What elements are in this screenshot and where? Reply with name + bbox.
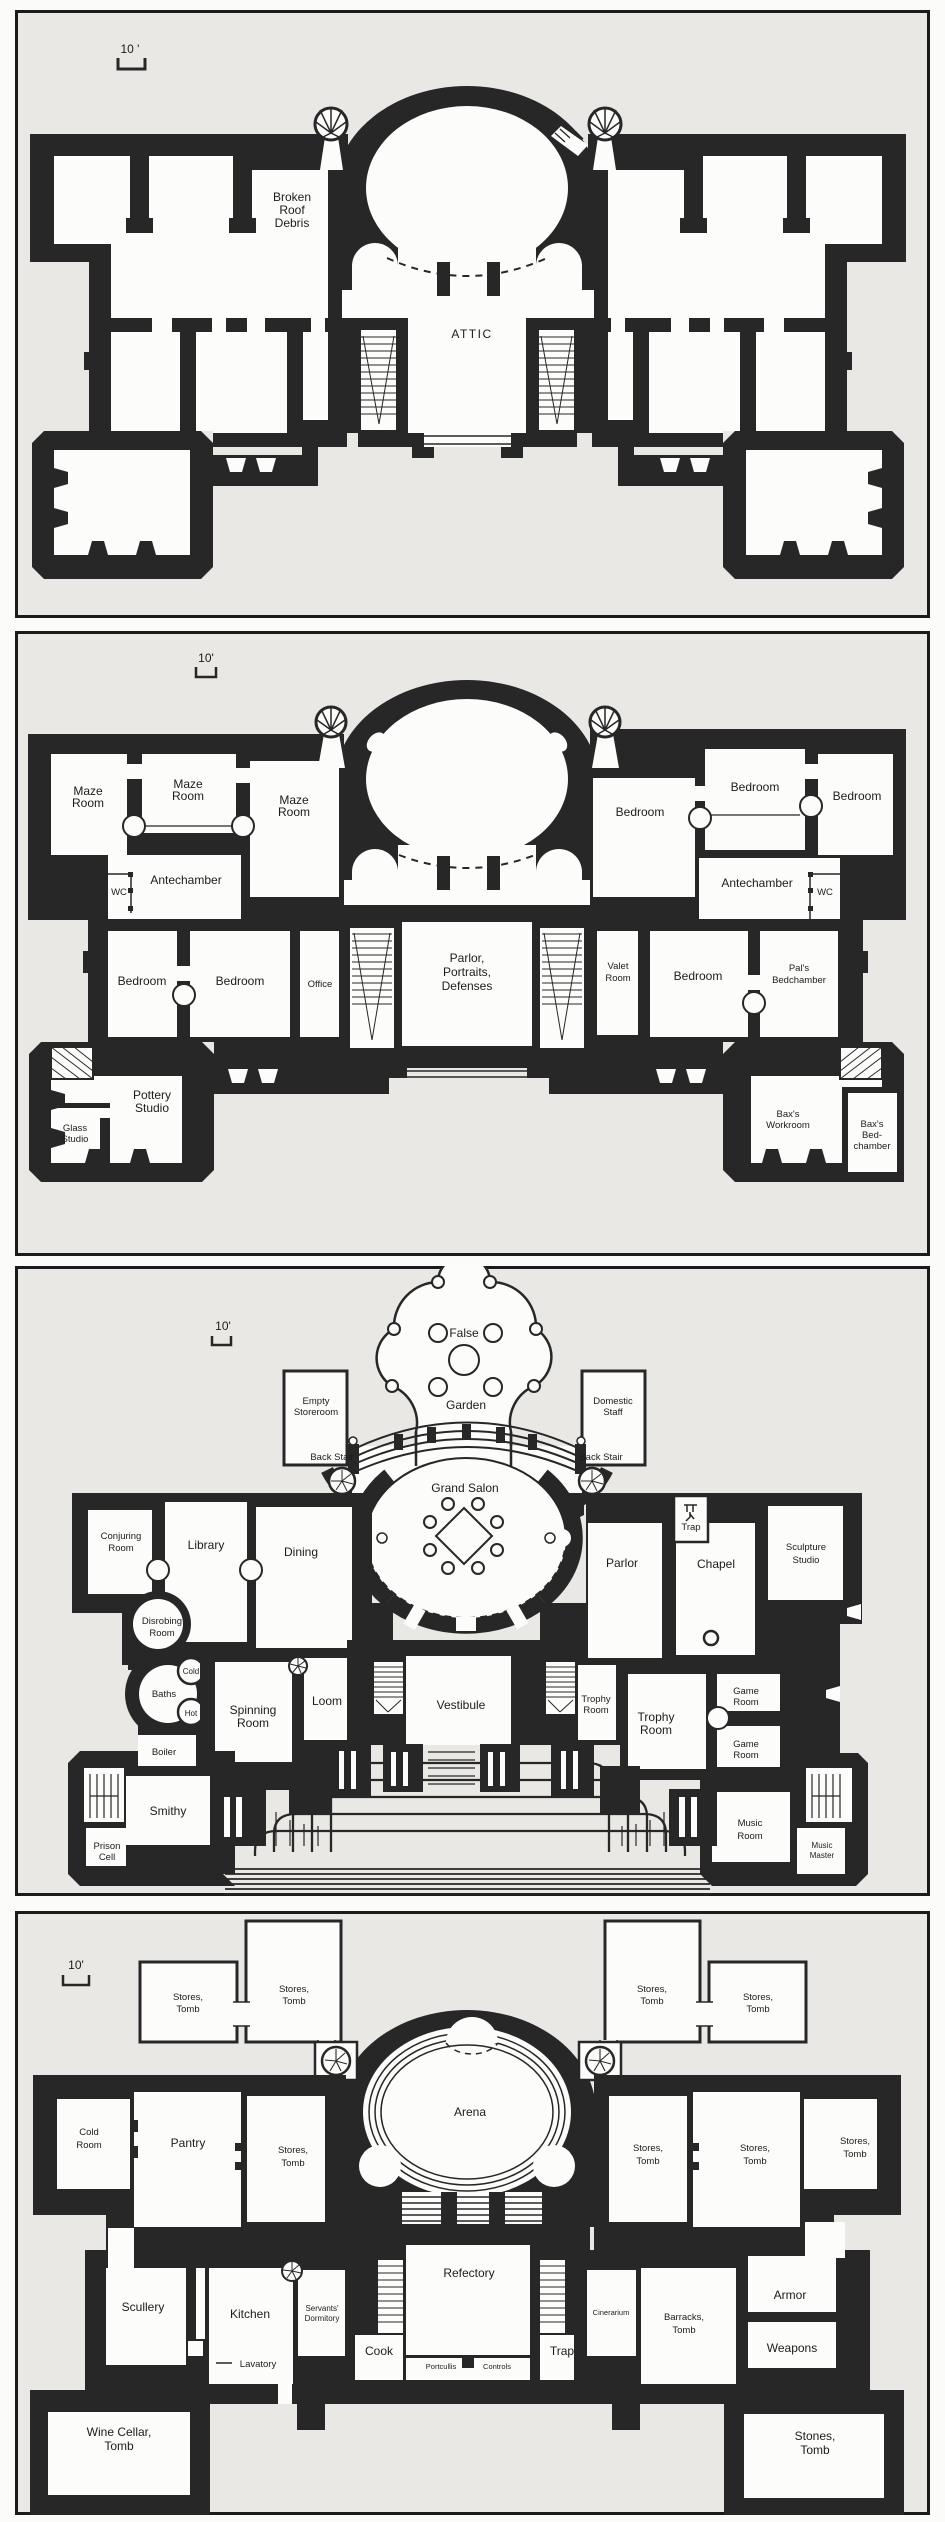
svg-text:Empty: Empty: [303, 1396, 330, 1407]
svg-text:Bedroom: Bedroom: [216, 974, 265, 988]
svg-text:Room: Room: [172, 789, 204, 803]
svg-text:Valet: Valet: [608, 961, 629, 972]
svg-text:Vestibule: Vestibule: [437, 1698, 486, 1712]
svg-text:Back Stair: Back Stair: [579, 1452, 622, 1463]
svg-text:Stores,: Stores,: [840, 2136, 870, 2147]
svg-text:Broken: Broken: [273, 190, 311, 204]
svg-text:Studio: Studio: [135, 1101, 169, 1115]
svg-text:Disrobing: Disrobing: [142, 1616, 182, 1627]
svg-text:Controls: Controls: [483, 2362, 511, 2371]
svg-text:Servants': Servants': [305, 2304, 339, 2313]
svg-text:Spinning: Spinning: [230, 1703, 277, 1717]
svg-text:Pottery: Pottery: [133, 1088, 171, 1102]
svg-text:Studio: Studio: [793, 1555, 820, 1566]
svg-text:Staff: Staff: [603, 1407, 623, 1418]
svg-text:Game: Game: [733, 1739, 759, 1750]
svg-text:Weapons: Weapons: [767, 2341, 817, 2355]
svg-text:Glass: Glass: [63, 1123, 88, 1134]
svg-text:Room: Room: [605, 973, 630, 984]
svg-text:Bedroom: Bedroom: [731, 780, 780, 794]
svg-text:Back Stair: Back Stair: [310, 1452, 353, 1463]
svg-text:Trophy: Trophy: [581, 1694, 610, 1705]
svg-text:Room: Room: [640, 1723, 672, 1737]
svg-text:Room: Room: [237, 1716, 269, 1730]
svg-text:Refectory: Refectory: [443, 2266, 494, 2280]
svg-text:Room: Room: [149, 1628, 174, 1639]
svg-text:Loom: Loom: [312, 1694, 342, 1708]
svg-text:Pal's: Pal's: [789, 963, 810, 974]
svg-text:Antechamber: Antechamber: [721, 876, 792, 890]
svg-text:Trap: Trap: [681, 1522, 700, 1533]
svg-text:Garden: Garden: [446, 1398, 486, 1412]
svg-text:Domestic: Domestic: [593, 1396, 633, 1407]
svg-text:Cook: Cook: [365, 2344, 394, 2358]
svg-text:Conjuring: Conjuring: [101, 1531, 142, 1542]
svg-text:Office: Office: [308, 979, 333, 990]
svg-text:Tomb: Tomb: [746, 2004, 769, 2015]
svg-text:Sculpture: Sculpture: [786, 1542, 826, 1553]
svg-text:Tomb: Tomb: [800, 2443, 830, 2457]
svg-text:Debris: Debris: [275, 216, 310, 230]
svg-text:Bed-: Bed-: [862, 1130, 882, 1141]
svg-text:Music: Music: [738, 1818, 763, 1829]
svg-text:Parlor,: Parlor,: [450, 951, 485, 965]
svg-text:Stores,: Stores,: [633, 2143, 663, 2154]
svg-text:Master: Master: [810, 1851, 835, 1860]
svg-text:Portcullis: Portcullis: [426, 2362, 457, 2371]
svg-text:Bedchamber: Bedchamber: [772, 975, 826, 986]
svg-text:Parlor: Parlor: [606, 1556, 638, 1570]
svg-text:Trophy: Trophy: [638, 1710, 675, 1724]
svg-text:Cell: Cell: [99, 1852, 115, 1863]
svg-text:ATTIC: ATTIC: [451, 327, 492, 341]
svg-text:Game: Game: [733, 1686, 759, 1697]
svg-text:WC: WC: [817, 887, 833, 898]
svg-text:chamber: chamber: [854, 1141, 891, 1152]
svg-text:Hot: Hot: [185, 1709, 198, 1718]
svg-text:Storeroom: Storeroom: [294, 1407, 338, 1418]
svg-text:Room: Room: [583, 1705, 608, 1716]
svg-text:Room: Room: [733, 1750, 758, 1761]
svg-text:Wine Cellar,: Wine Cellar,: [87, 2425, 152, 2439]
svg-text:10': 10': [68, 1958, 84, 1972]
svg-text:Grand Salon: Grand Salon: [431, 1481, 498, 1495]
svg-text:Library: Library: [188, 1538, 225, 1552]
svg-text:False: False: [449, 1326, 479, 1340]
svg-text:Workroom: Workroom: [766, 1120, 810, 1131]
svg-text:Stores,: Stores,: [173, 1992, 203, 2003]
svg-text:Portraits,: Portraits,: [443, 965, 491, 979]
svg-text:Tomb: Tomb: [672, 2325, 695, 2336]
svg-text:Arena: Arena: [454, 2105, 486, 2119]
svg-text:Music: Music: [812, 1841, 833, 1850]
svg-text:Bax's: Bax's: [861, 1119, 884, 1130]
svg-text:Boiler: Boiler: [152, 1747, 176, 1758]
svg-text:Chapel: Chapel: [697, 1557, 735, 1571]
svg-text:Studio: Studio: [62, 1134, 89, 1145]
svg-text:Bedroom: Bedroom: [833, 789, 882, 803]
svg-text:Tomb: Tomb: [176, 2004, 199, 2015]
svg-text:Lavatory: Lavatory: [240, 2359, 277, 2370]
svg-text:Stores,: Stores,: [279, 1984, 309, 1995]
svg-text:Kitchen: Kitchen: [230, 2307, 270, 2321]
svg-text:WC: WC: [111, 887, 127, 898]
svg-text:Tomb: Tomb: [743, 2156, 766, 2167]
svg-text:Cold: Cold: [79, 2127, 99, 2138]
svg-text:Barracks,: Barracks,: [664, 2312, 704, 2323]
svg-text:Room: Room: [733, 1697, 758, 1708]
svg-text:Roof: Roof: [279, 203, 305, 217]
svg-text:10': 10': [198, 651, 214, 665]
svg-text:Defenses: Defenses: [442, 979, 493, 993]
svg-text:Dining: Dining: [284, 1545, 318, 1559]
svg-text:Bedroom: Bedroom: [674, 969, 723, 983]
svg-text:Bax's: Bax's: [777, 1109, 800, 1120]
svg-text:Room: Room: [737, 1831, 762, 1842]
svg-text:Room: Room: [108, 1543, 133, 1554]
svg-text:Tomb: Tomb: [843, 2149, 866, 2160]
svg-text:Stones,: Stones,: [795, 2429, 836, 2443]
svg-text:Antechamber: Antechamber: [150, 873, 221, 887]
svg-text:Stores,: Stores,: [278, 2145, 308, 2156]
svg-text:Cold: Cold: [183, 1667, 199, 1676]
svg-text:Dormitory: Dormitory: [305, 2314, 340, 2323]
svg-text:Armor: Armor: [774, 2288, 807, 2302]
svg-text:Bedroom: Bedroom: [616, 805, 665, 819]
svg-text:Tomb: Tomb: [281, 2158, 304, 2169]
svg-text:Stores,: Stores,: [743, 1992, 773, 2003]
svg-text:Pantry: Pantry: [171, 2136, 206, 2150]
svg-text:Tomb: Tomb: [640, 1996, 663, 2007]
svg-text:Room: Room: [76, 2140, 101, 2151]
svg-text:Smithy: Smithy: [150, 1804, 187, 1818]
svg-text:Trap: Trap: [550, 2344, 575, 2358]
svg-text:Tomb: Tomb: [636, 2156, 659, 2167]
svg-text:Scullery: Scullery: [122, 2300, 165, 2314]
svg-text:Cinerarium: Cinerarium: [593, 2308, 630, 2317]
svg-text:Room: Room: [278, 805, 310, 819]
svg-text:Room: Room: [72, 796, 104, 810]
svg-text:10 ': 10 ': [121, 42, 140, 56]
svg-text:Tomb: Tomb: [104, 2439, 134, 2453]
svg-text:Prison: Prison: [94, 1841, 121, 1852]
svg-text:Baths: Baths: [152, 1689, 177, 1700]
svg-text:Bedroom: Bedroom: [118, 974, 167, 988]
svg-text:10': 10': [215, 1319, 231, 1333]
svg-text:Stores,: Stores,: [740, 2143, 770, 2154]
svg-text:Stores,: Stores,: [637, 1984, 667, 1995]
svg-text:Tomb: Tomb: [282, 1996, 305, 2007]
